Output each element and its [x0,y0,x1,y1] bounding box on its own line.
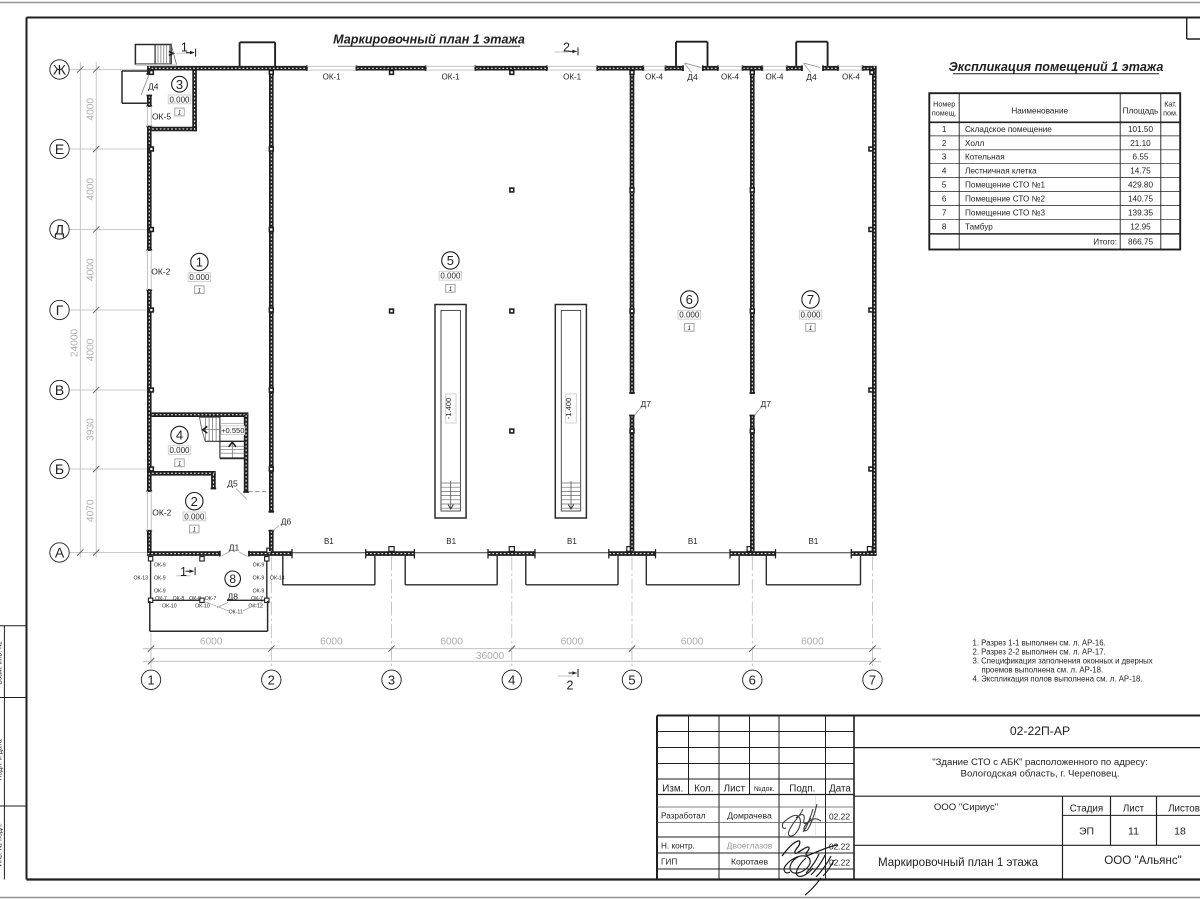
svg-text:Д7: Д7 [641,399,652,409]
svg-text:139.35: 139.35 [1128,208,1153,217]
svg-text:ОК-8: ОК-8 [189,596,201,602]
svg-text:ОК-2: ОК-2 [152,508,171,518]
svg-text:4: 4 [176,428,183,443]
svg-text:0.000: 0.000 [679,311,700,320]
svg-text:Г: Г [56,302,64,318]
svg-text:02-22П-АР: 02-22П-АР [1010,724,1070,738]
svg-text:0.000: 0.000 [169,446,190,455]
svg-text:Дата: Дата [829,784,851,795]
svg-text:6000: 6000 [801,636,824,647]
svg-text:Д8: Д8 [228,592,239,602]
svg-text:ОК-4: ОК-4 [842,72,861,81]
svg-text:1: 1 [178,460,182,467]
svg-text:Подп. и дата: Подп. и дата [0,739,4,780]
svg-text:Е: Е [55,141,64,157]
svg-text:8: 8 [229,572,236,586]
svg-text:Площадь: Площадь [1123,107,1159,116]
svg-text:140.75: 140.75 [1128,194,1153,203]
svg-text:0.000: 0.000 [189,273,210,282]
svg-text:Листов: Листов [1168,804,1200,815]
svg-text:Итого:: Итого: [1093,238,1117,247]
svg-text:ЭП: ЭП [1079,826,1094,838]
svg-text:4000: 4000 [86,338,97,361]
svg-text:ОК-9: ОК-9 [253,589,265,595]
svg-text:6: 6 [749,673,756,688]
svg-text:1: 1 [193,527,197,534]
svg-text:11: 11 [1128,826,1139,838]
svg-text:"Здание СТО с АБК" расположенн: "Здание СТО с АБК" расположенного по адр… [932,757,1148,768]
svg-text:ОК-10: ОК-10 [195,604,210,610]
svg-text:2: 2 [567,679,574,693]
svg-text:ОК-9: ОК-9 [154,563,166,569]
svg-text:Д: Д [55,222,65,238]
svg-text:3930: 3930 [86,418,97,441]
svg-text:1: 1 [196,255,203,270]
svg-text:0.000: 0.000 [440,272,461,281]
svg-text:-1.400: -1.400 [564,398,573,420]
svg-text:Б: Б [55,461,64,477]
svg-text:4: 4 [942,167,947,176]
svg-text:ОК-13: ОК-13 [134,576,149,582]
svg-text:Инв. № подл.: Инв. № подл. [0,823,4,867]
svg-text:А: А [55,545,65,561]
svg-text:Маркировочный план 1 этажа: Маркировочный план 1 этажа [878,856,1039,869]
svg-text:3: 3 [942,153,947,162]
svg-text:Кол.: Кол. [694,784,713,795]
svg-text:1. Разрез 1-1 выполнен см. л.: 1. Разрез 1-1 выполнен см. л. АР-16. [973,639,1106,648]
svg-text:№док.: №док. [754,786,775,793]
svg-text:1: 1 [178,110,182,117]
svg-text:7: 7 [869,673,876,688]
svg-text:2. Разрез 2-2 выполнен см. л.: 2. Разрез 2-2 выполнен см. л. АР-17. [973,648,1106,657]
svg-text:Д5: Д5 [227,479,238,489]
svg-text:ОК-1: ОК-1 [563,72,582,81]
svg-text:ОК-9: ОК-9 [154,589,166,595]
svg-text:помещ.: помещ. [932,108,957,117]
svg-text:Кат.: Кат. [1164,99,1177,108]
svg-text:1: 1 [198,287,202,294]
svg-text:ОК-2: ОК-2 [151,266,170,276]
svg-text:2: 2 [191,494,198,509]
svg-text:4000: 4000 [86,258,97,281]
svg-text:ОК-1: ОК-1 [442,72,461,81]
svg-text:7: 7 [942,208,947,217]
svg-text:866.75: 866.75 [1128,238,1153,247]
svg-text:4. Экспликация полов выполнена: 4. Экспликация полов выполнена см. л. АР… [973,675,1143,684]
svg-text:ОК-1: ОК-1 [323,72,342,81]
svg-text:21.10: 21.10 [1130,139,1151,148]
svg-text:8: 8 [942,223,947,232]
svg-text:1: 1 [688,325,692,332]
svg-text:3. Спецификация заполнения око: 3. Спецификация заполнения оконных и две… [973,657,1153,666]
svg-text:24000: 24000 [70,329,81,358]
svg-text:Лестничная клетка: Лестничная клетка [965,167,1037,176]
svg-text:Д4: Д4 [806,72,817,82]
svg-text:2: 2 [268,673,275,688]
svg-text:Домрачева: Домрачева [727,811,772,821]
svg-text:Изм.: Изм. [662,784,683,795]
svg-text:проемов выполнена см. л. АР-18: проемов выполнена см. л. АР-18. [982,666,1104,675]
svg-text:Разработал: Разработал [661,812,706,821]
svg-text:Взам. инв. №: Взам. инв. № [0,641,4,684]
svg-text:ОК-9: ОК-9 [154,576,166,582]
svg-text:Двоеглазов: Двоеглазов [727,841,773,851]
svg-text:Д7: Д7 [761,399,772,409]
svg-text:В: В [55,382,64,398]
svg-text:02.22: 02.22 [829,811,850,821]
svg-text:ОК-4: ОК-4 [645,72,664,81]
svg-text:Экспликация помещений 1 этажа: Экспликация помещений 1 этажа [949,60,1164,74]
svg-text:0.000: 0.000 [169,95,190,104]
svg-text:В1: В1 [688,537,698,546]
svg-text:ОК-7: ОК-7 [205,596,217,602]
svg-text:Номер: Номер [933,99,955,108]
svg-text:ОК-11: ОК-11 [229,610,243,616]
svg-text:6: 6 [942,194,947,203]
svg-text:ОК-7: ОК-7 [251,596,263,602]
svg-text:ОК-10: ОК-10 [162,604,177,610]
svg-text:1: 1 [180,565,187,579]
svg-text:5: 5 [447,253,454,268]
svg-text:Маркировочный план 1 этажа: Маркировочный план 1 этажа [333,33,525,47]
svg-text:6000: 6000 [320,636,343,647]
svg-text:ГИП: ГИП [661,858,677,867]
svg-text:6000: 6000 [681,636,704,647]
svg-text:ОК-8: ОК-8 [173,596,185,602]
svg-text:ОК-9: ОК-9 [253,576,265,582]
svg-text:0.000: 0.000 [184,512,205,521]
svg-text:ООО "Сириус": ООО "Сириус" [934,802,998,813]
svg-text:Коротаев: Коротаев [731,857,769,867]
svg-text:Помещение СТО №3: Помещение СТО №3 [965,208,1045,217]
svg-text:Д1: Д1 [229,542,240,552]
svg-text:Н. контр.: Н. контр. [661,842,695,851]
svg-text:5: 5 [628,673,635,688]
svg-text:101.50: 101.50 [1128,125,1153,134]
svg-text:12.95: 12.95 [1130,223,1151,232]
svg-text:3: 3 [388,673,395,688]
svg-text:4000: 4000 [86,178,97,201]
svg-text:6: 6 [686,292,693,307]
svg-text:Подп.: Подп. [789,784,815,795]
svg-text:ООО "Альянс": ООО "Альянс" [1104,854,1182,867]
svg-text:Помещение СТО №2: Помещение СТО №2 [965,194,1045,203]
svg-text:3: 3 [176,77,183,92]
svg-text:ОК-5: ОК-5 [152,112,171,122]
svg-text:0.000: 0.000 [800,311,821,320]
svg-text:Складское помещение: Складское помещение [965,125,1052,134]
svg-text:1: 1 [942,125,947,134]
svg-text:6000: 6000 [200,636,223,647]
svg-text:В1: В1 [324,537,334,546]
svg-text:36000: 36000 [476,651,505,662]
svg-text:Котельная: Котельная [965,153,1005,162]
svg-text:1: 1 [809,325,813,332]
svg-text:6000: 6000 [561,636,584,647]
svg-text:Наименование: Наименование [1011,107,1068,116]
svg-text:ОК-4: ОК-4 [766,72,785,81]
svg-text:ОК-7: ОК-7 [155,596,167,602]
svg-text:Лист: Лист [1123,804,1145,815]
svg-text:+0.550: +0.550 [221,426,244,435]
svg-text:6.55: 6.55 [1133,153,1149,162]
svg-text:4000: 4000 [86,98,97,121]
svg-text:В1: В1 [446,537,456,546]
svg-text:пом.: пом. [1163,108,1178,117]
svg-text:1: 1 [449,286,453,293]
svg-text:7: 7 [807,292,814,307]
svg-text:-1.400: -1.400 [444,398,453,420]
svg-text:Холл: Холл [965,139,985,148]
svg-text:Вологодская область, г. Черепо: Вологодская область, г. Череповец. [961,768,1120,779]
svg-text:4070: 4070 [86,499,97,522]
svg-text:ОК-9: ОК-9 [253,563,265,569]
svg-text:Д4: Д4 [148,81,159,91]
svg-text:14.75: 14.75 [1130,167,1151,176]
svg-text:5: 5 [942,180,947,189]
svg-text:6000: 6000 [440,636,463,647]
svg-text:ОК-4: ОК-4 [721,72,740,81]
svg-text:Тамбур: Тамбур [965,223,993,232]
svg-text:В1: В1 [809,537,819,546]
svg-text:Ж: Ж [53,62,66,78]
svg-text:2: 2 [563,41,570,55]
svg-text:ОК-13: ОК-13 [270,576,285,582]
svg-text:2: 2 [942,139,947,148]
svg-text:Д6: Д6 [281,516,292,526]
svg-text:Д4: Д4 [687,72,698,82]
svg-text:В1: В1 [567,537,577,546]
svg-text:Помещение СТО №1: Помещение СТО №1 [965,180,1045,189]
svg-text:18: 18 [1174,826,1186,838]
svg-text:4: 4 [508,673,515,688]
svg-text:1: 1 [147,673,154,688]
svg-text:Стадия: Стадия [1070,804,1103,815]
svg-text:Лист: Лист [724,784,746,795]
svg-text:429.80: 429.80 [1128,180,1153,189]
